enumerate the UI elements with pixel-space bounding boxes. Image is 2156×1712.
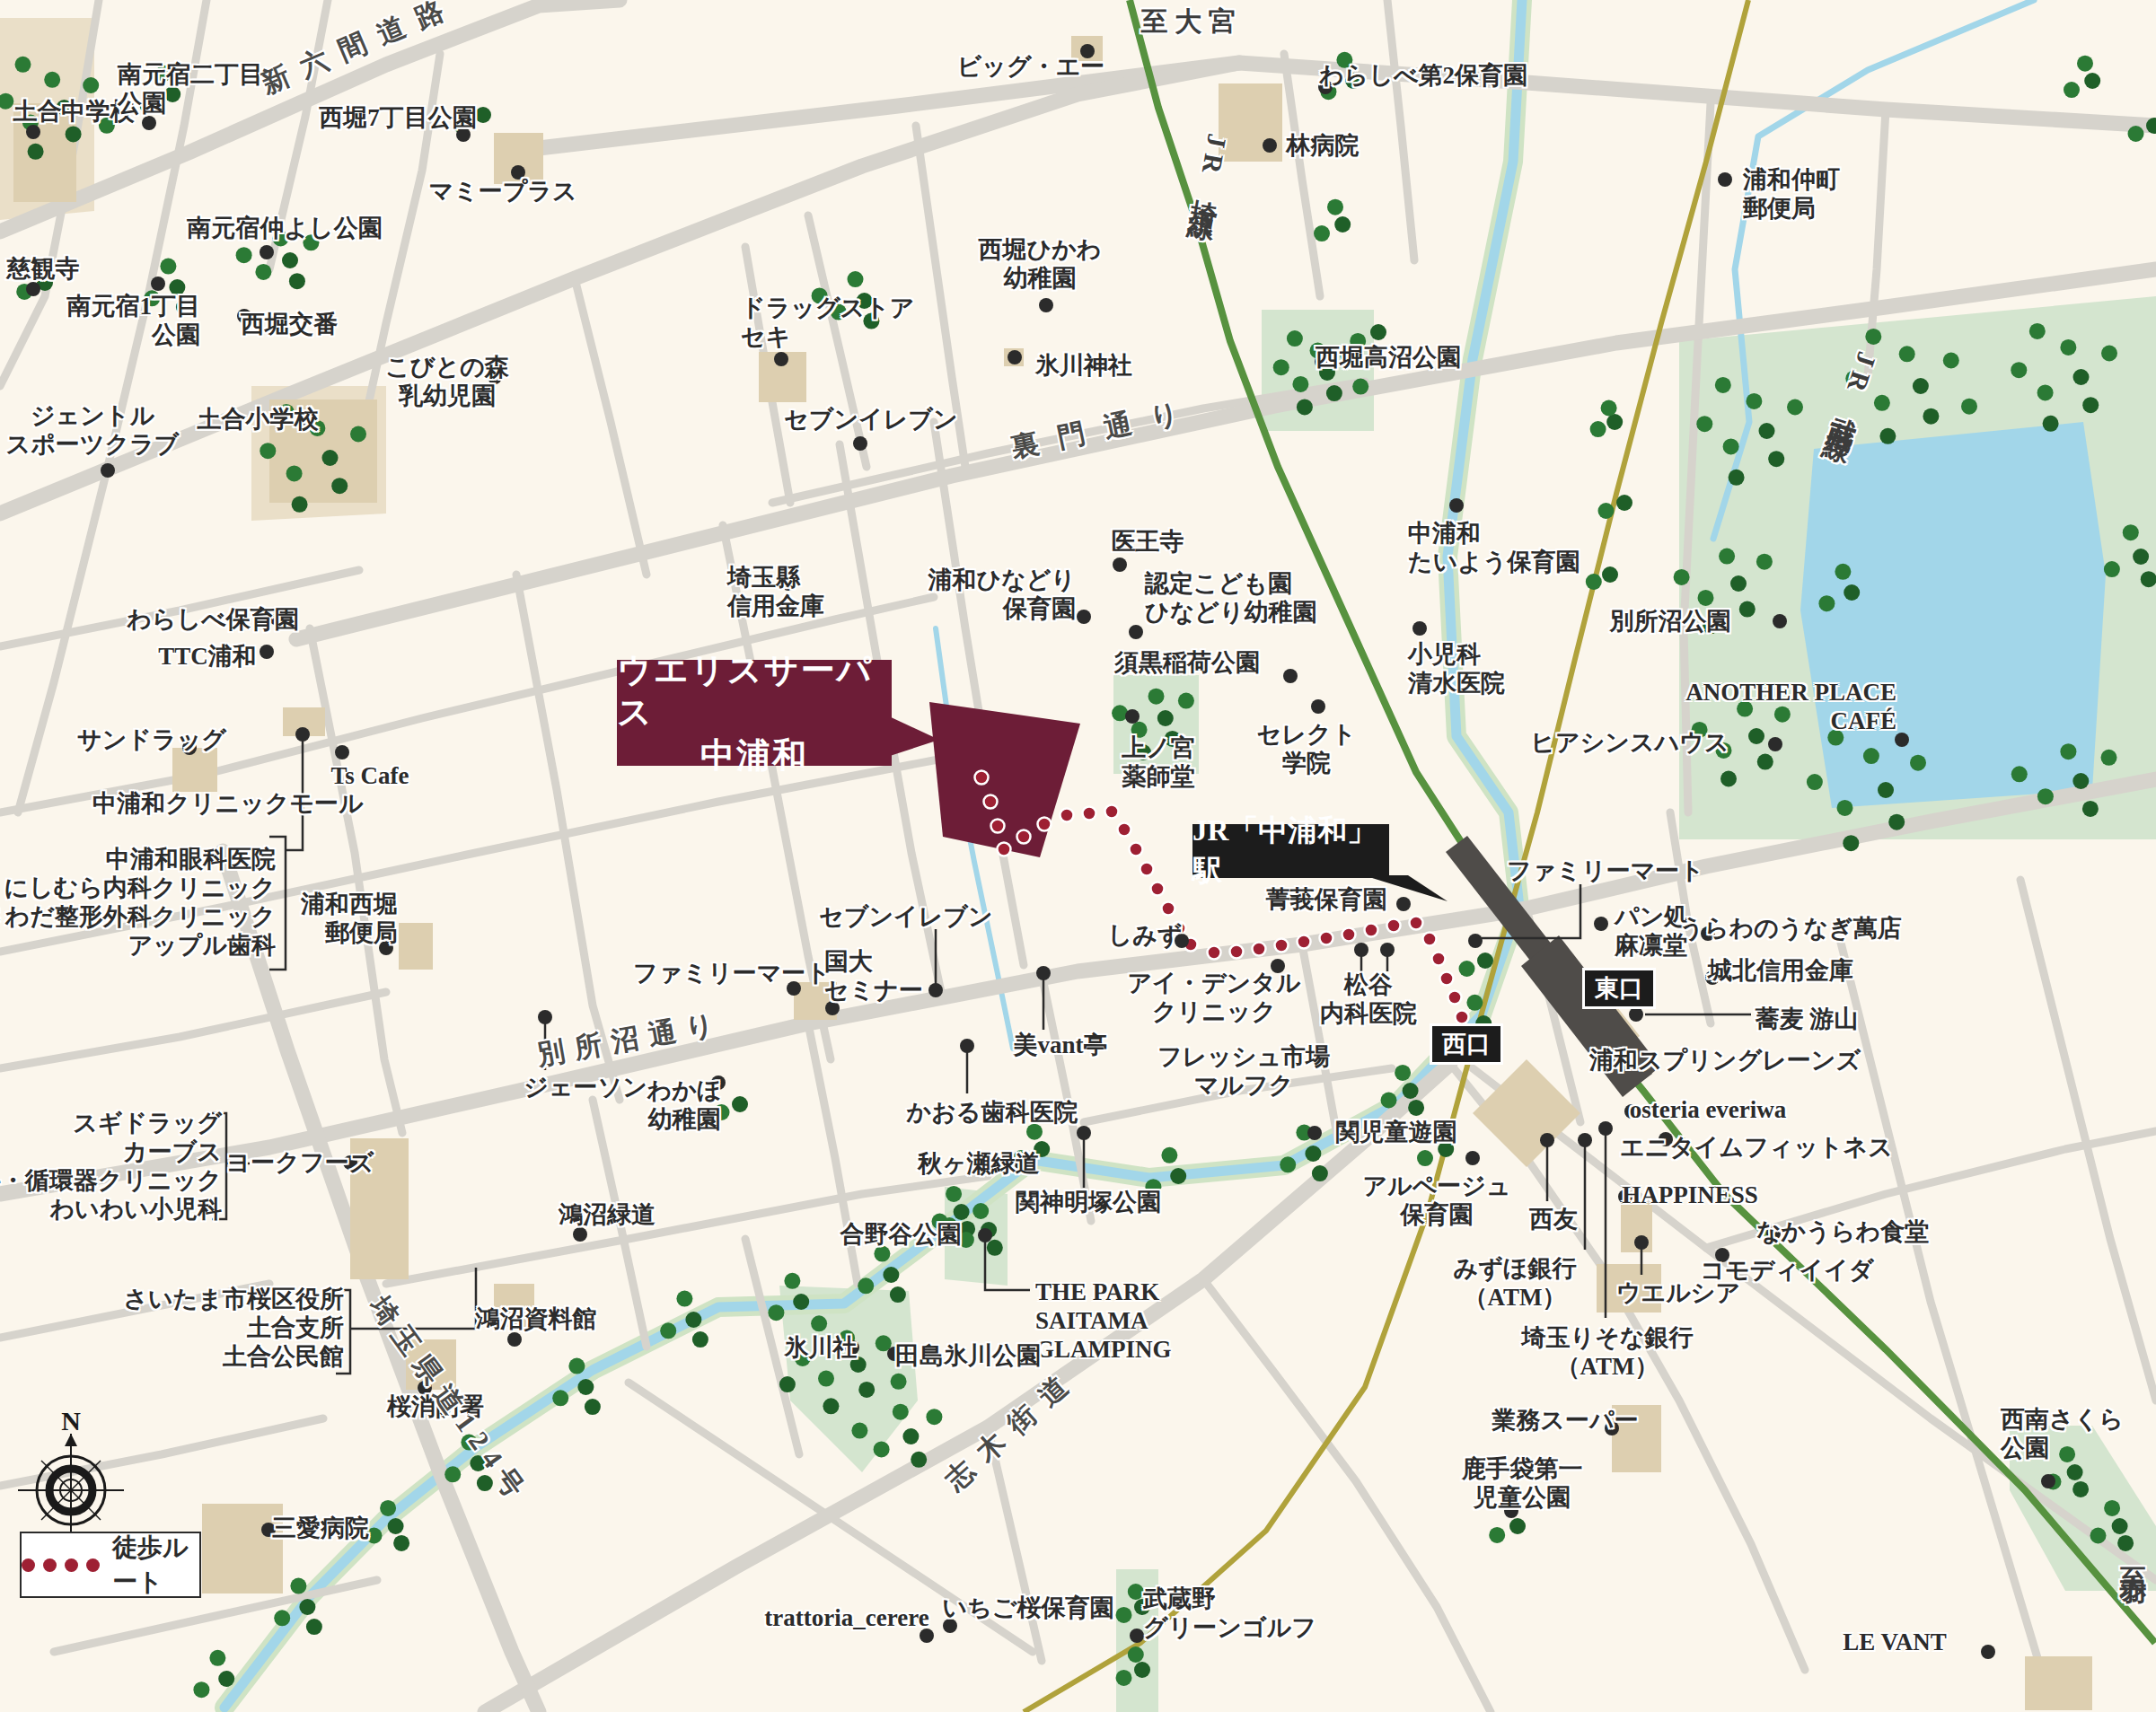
tree-icon: [1720, 771, 1737, 787]
poi-label: 西堀7丁目公園: [319, 104, 477, 133]
poi-label: わらしべ保育園: [127, 606, 299, 635]
poi-label: 浦和スプリングレーンズ: [1589, 1047, 1861, 1075]
poi-label: うらわのうなぎ萬店: [1679, 915, 1901, 944]
poi-dot: [1113, 557, 1127, 572]
poi-label: なかうらわ食堂: [1756, 1218, 1929, 1247]
tree-icon: [292, 496, 308, 513]
station-east-gate-label: 東口: [1582, 968, 1656, 1009]
poi-dot: [853, 436, 867, 451]
tree-icon: [1403, 1083, 1419, 1099]
tree-icon: [2043, 416, 2059, 432]
poi-label: 松谷内科医院: [1320, 971, 1417, 1029]
poi-label: セレクト学院: [1257, 721, 1357, 778]
poi-label: 田島氷川公園: [895, 1342, 1041, 1371]
poi-label: パン処麻凛堂: [1615, 903, 1688, 961]
building: [1473, 1059, 1580, 1167]
tree-icon: [1381, 1093, 1397, 1109]
tree-icon: [926, 1409, 942, 1425]
tree-icon: [1837, 800, 1853, 816]
tree-icon: [286, 465, 303, 481]
walk-route-dot: [1208, 946, 1221, 960]
poi-dot: [928, 983, 943, 997]
tree-icon: [1910, 755, 1926, 771]
tree-icon: [1178, 693, 1194, 709]
poi-label: サンドラッグ: [77, 726, 226, 755]
tree-icon: [1739, 601, 1756, 618]
tree-icon: [811, 1315, 827, 1331]
tree-icon: [1417, 1150, 1433, 1166]
poi-label: 埼玉縣信用金庫: [727, 564, 824, 621]
poi-label: ファミリーマート: [1507, 857, 1704, 886]
poi-label: 南元宿1丁目公園: [67, 293, 201, 350]
poi-dot: [1594, 917, 1608, 931]
tree-icon: [1863, 748, 1879, 764]
tree-icon: [1698, 590, 1714, 606]
walk-route-dots-icon: [22, 1558, 100, 1572]
poi-label: 浦和仲町郵便局: [1743, 166, 1840, 224]
tree-icon: [874, 1441, 890, 1457]
tree-icon: [1843, 835, 1859, 851]
tree-icon: [1674, 569, 1690, 585]
poi-label: 認定こども園ひなどり幼稚園: [1145, 570, 1317, 628]
tree-icon: [1746, 393, 1762, 409]
building: [399, 923, 433, 970]
poi-dot: [1354, 943, 1368, 957]
compass-graphic: [18, 1434, 124, 1547]
walk-route-dot: [1230, 945, 1244, 959]
poi-label: アルページュ保育園: [1362, 1172, 1510, 1230]
compass-north-label: N: [61, 1406, 81, 1435]
tree-icon: [299, 1599, 315, 1615]
poi-dot: [1396, 897, 1411, 911]
street: [1841, 943, 2038, 1661]
tree-icon: [2011, 766, 2028, 782]
tree-icon: [1352, 379, 1368, 395]
walk-route-dot: [1253, 943, 1266, 956]
property-name-line1: ウエリスサーパス: [617, 649, 892, 734]
poi-dot: [1125, 709, 1140, 724]
tree-icon: [848, 271, 864, 287]
poi-label: 医王寺: [1112, 528, 1184, 557]
tree-icon: [911, 1452, 927, 1468]
pond: [1800, 422, 2106, 808]
poi-dot: [1311, 699, 1325, 714]
tree-icon: [350, 426, 366, 443]
poi-label: 氷川社: [785, 1334, 858, 1363]
walk-route-dot: [1060, 809, 1074, 822]
tree-icon: [1370, 324, 1386, 340]
poi-dot: [1449, 498, 1464, 513]
poi-dot: [538, 1010, 552, 1024]
tree-icon: [1729, 470, 1745, 486]
street: [2020, 880, 2156, 1400]
tree-icon: [568, 1358, 585, 1374]
tree-icon: [2112, 1518, 2128, 1534]
poi-label: かおる歯科医院: [907, 1099, 1078, 1128]
tree-icon: [44, 72, 60, 88]
tree-icon: [1489, 1527, 1505, 1543]
tree-icon: [1314, 225, 1330, 241]
walk-route-dot: [1162, 902, 1175, 916]
poi-label: 国大セミナー: [824, 948, 923, 1005]
poi-label: 林病院: [1287, 132, 1360, 161]
tree-icon: [1459, 961, 1475, 977]
poi-dot: [1465, 1151, 1480, 1165]
poi-dot: [1263, 138, 1277, 153]
tree-icon: [2104, 1500, 2120, 1516]
poi-label: 合野谷公園: [840, 1221, 962, 1250]
poi-dot: [2041, 1474, 2055, 1488]
tree-icon: [676, 1291, 692, 1307]
poi-label: 鹿手袋第一児童公園: [1462, 1455, 1583, 1513]
tree-icon: [1835, 564, 1851, 580]
poi-label: 須黒稲荷公園: [1114, 649, 1260, 678]
walk-route-dot: [1440, 972, 1454, 986]
poi-label: ファミリーマート: [633, 960, 831, 988]
tree-icon: [883, 1267, 899, 1283]
tree-icon: [306, 1619, 322, 1635]
tree-icon: [1334, 216, 1351, 233]
tree-icon: [1844, 584, 1860, 601]
tree-icon: [1170, 1168, 1186, 1184]
poi-label: ANOTHER PLACECAFÉ: [1685, 679, 1896, 736]
poi-label: ビッグ・エー: [957, 53, 1105, 82]
tree-icon: [1757, 754, 1773, 770]
walk-route-dot: [984, 795, 998, 809]
tree-icon: [1128, 1584, 1144, 1600]
station-west-gate-label: 西口: [1430, 1023, 1503, 1065]
tree-icon: [66, 126, 82, 142]
street: [1203, 1279, 1491, 1712]
tree-icon: [552, 1390, 568, 1406]
tree-icon: [1759, 423, 1775, 439]
tree-icon: [1327, 199, 1343, 215]
trees-layer: [0, 52, 2156, 1698]
tree-icon: [1768, 451, 1784, 467]
tree-icon: [2123, 524, 2139, 540]
poi-label: osteria everiwa: [1630, 1096, 1787, 1125]
tree-icon: [2101, 750, 2117, 766]
tree-icon: [1879, 428, 1896, 444]
poi-dot: [1008, 350, 1022, 364]
poi-label: TTC浦和: [158, 643, 257, 672]
poi-label: わらしべ第2保育園: [1319, 62, 1527, 91]
poi-dot: [1380, 943, 1395, 957]
tree-icon: [209, 1650, 225, 1666]
tree-icon: [2029, 323, 2046, 339]
poi-label: ドラッグストアセキ: [741, 294, 914, 352]
tree-icon: [784, 1273, 800, 1289]
poi-label: ジェーソン: [524, 1074, 647, 1102]
poi-label: 西友: [1529, 1206, 1578, 1234]
poi-dot: [1629, 1007, 1643, 1022]
tree-icon: [1590, 421, 1606, 437]
walk-route-dot: [1387, 919, 1401, 933]
poi-dot: [1077, 610, 1091, 624]
tree-icon: [972, 1203, 989, 1219]
tree-icon: [732, 1096, 748, 1112]
poi-label: LE VANT: [1843, 1629, 1946, 1657]
walk-route-dot: [1275, 939, 1289, 953]
tree-icon: [818, 1371, 834, 1387]
poi-label: 美vant亭: [1013, 1032, 1107, 1060]
tree-icon: [1287, 330, 1303, 347]
poi-label: 鴻沼緑道: [559, 1201, 656, 1230]
walk-route-dot: [991, 820, 1005, 833]
walk-route-dot: [1456, 1011, 1469, 1024]
tree-icon: [193, 1681, 209, 1698]
tree-icon: [1395, 1065, 1411, 1081]
street: [575, 278, 647, 575]
tree-icon: [2037, 788, 2054, 804]
tree-icon: [1466, 995, 1483, 1011]
tree-icon: [255, 264, 271, 280]
tree-icon: [2084, 73, 2100, 89]
poi-label: 氷川神社: [1035, 352, 1132, 381]
tree-icon: [2082, 801, 2099, 817]
tree-icon: [380, 1500, 396, 1516]
poi-dot: [1283, 669, 1298, 683]
poi-dot: [335, 745, 349, 759]
poi-label: 南元宿二丁目公園: [118, 61, 263, 119]
walk-route-dot: [1151, 882, 1165, 896]
tree-icon: [893, 1404, 909, 1420]
poi-label: 南元宿仲よし公園: [187, 215, 382, 243]
poi-label: マミープラス: [428, 178, 576, 206]
poi-dot: [26, 125, 40, 139]
rail-label: 至赤羽: [2117, 1546, 2149, 1567]
tree-icon: [1602, 566, 1618, 583]
tree-icon: [987, 1240, 1003, 1256]
tree-icon: [2064, 82, 2080, 98]
street: [310, 628, 402, 1133]
poi-dot: [1634, 1235, 1649, 1250]
walk-route-dot: [1140, 863, 1154, 876]
tree-icon: [1943, 353, 1959, 369]
tree-icon: [2128, 126, 2144, 142]
tree-icon: [1756, 554, 1773, 570]
poi-label: 関神明塚公園: [1016, 1189, 1161, 1217]
poi-label: しみず: [1108, 922, 1183, 951]
poi-label: 鴻沼資料館: [476, 1305, 597, 1334]
tree-icon: [1719, 549, 1735, 565]
tree-icon: [1273, 359, 1289, 375]
tree-icon: [858, 1277, 874, 1294]
tree-icon: [1157, 710, 1174, 726]
poi-label: セブンイレブン: [819, 903, 992, 932]
tree-icon: [851, 1423, 867, 1439]
street: [1284, 54, 1320, 296]
tree-icon: [692, 1331, 708, 1348]
tree-icon: [1616, 495, 1632, 511]
tree-icon: [1923, 408, 1939, 425]
tree-icon: [2072, 773, 2089, 789]
tree-icon: [858, 1382, 875, 1398]
poi-dot: [1718, 172, 1732, 187]
poi-label: 三愛病院: [272, 1514, 369, 1543]
tree-icon: [685, 1312, 701, 1328]
poi-dot: [1540, 1133, 1554, 1147]
tree-icon: [1961, 399, 1977, 415]
tree-icon: [1878, 782, 1894, 798]
tree-icon: [444, 1466, 461, 1482]
tree-icon: [2077, 56, 2093, 72]
tree-icon: [2060, 339, 2076, 356]
station-label: JR「中浦和」駅: [1192, 824, 1389, 878]
tree-icon: [1888, 814, 1905, 830]
poi-label: 別所沼公園: [1610, 608, 1731, 637]
tree-icon: [2072, 1481, 2089, 1497]
tree-icon: [660, 1322, 676, 1339]
poi-dot: [1895, 733, 1909, 747]
walk-route-dot: [1130, 843, 1143, 856]
tree-icon: [793, 1294, 809, 1310]
tree-icon: [236, 247, 252, 263]
poi-label: みずほ銀行（ATM）: [1454, 1255, 1577, 1313]
tree-icon: [2141, 571, 2156, 587]
poi-dot: [1768, 737, 1782, 751]
tree-icon: [15, 57, 31, 73]
tree-icon: [83, 77, 99, 93]
tree-icon: [1723, 438, 1739, 454]
tree-icon: [1730, 575, 1747, 592]
tree-icon: [2037, 384, 2054, 400]
poi-label: 西堀交番: [241, 311, 338, 339]
tree-icon: [1326, 385, 1342, 401]
tree-icon: [768, 1304, 784, 1321]
poi-label: 埼玉りそな銀行（ATM）: [1522, 1324, 1694, 1382]
poi-label: 蕎麦 游山: [1756, 1005, 1859, 1034]
building: [202, 1504, 283, 1593]
tree-icon: [1408, 1100, 1424, 1116]
tree-icon: [1586, 574, 1602, 590]
tree-icon: [260, 443, 276, 459]
tree-icon: [475, 107, 491, 123]
poi-dot: [1412, 621, 1427, 636]
walk-route-dot: [975, 771, 989, 785]
poi-dot: [101, 463, 115, 478]
poi-dot: [1773, 614, 1787, 628]
poi-label: ジェントルスポーツクラブ: [6, 402, 180, 460]
poi-label: 土合中学校: [13, 98, 135, 127]
poi-dot: [1129, 625, 1143, 639]
poi-label: 慈観寺: [7, 255, 80, 284]
poi-dot: [26, 282, 40, 296]
poi-dot: [1578, 1133, 1592, 1147]
tree-icon: [1148, 689, 1165, 705]
tree-icon: [1292, 376, 1308, 392]
poi-label: THE PARKSAITAMAGLAMPING: [1035, 1278, 1172, 1365]
tree-icon: [577, 1379, 594, 1395]
tree-icon: [2011, 362, 2027, 378]
tree-icon: [1601, 400, 1617, 417]
poi-label: trattoria_cerere: [764, 1604, 928, 1633]
tree-icon: [1112, 705, 1128, 721]
tree-icon: [2073, 369, 2090, 385]
poi-label: 関児童遊園: [1336, 1119, 1457, 1147]
street: [0, 992, 386, 1068]
walk-route-dot: [1105, 805, 1119, 819]
tree-icon: [1116, 1670, 1132, 1686]
walk-route-label: 徒歩ルート: [112, 1531, 199, 1599]
walk-route-dot: [1432, 953, 1446, 966]
poi-dot: [260, 245, 274, 259]
poi-label: 上ノ宮薬師堂: [1122, 734, 1195, 792]
walk-route-dot: [998, 843, 1011, 856]
tree-icon: [891, 1374, 907, 1390]
poi-dot: [774, 352, 788, 366]
poi-label: 中浦和クリニックモール: [92, 790, 363, 819]
poi-label: エニタイムフィットネス: [1620, 1134, 1893, 1163]
poi-dot: [1039, 298, 1053, 312]
tree-icon: [2067, 1464, 2083, 1480]
poi-label: 浦和ひなどり保育園: [928, 566, 1076, 624]
poi-dot: [1036, 966, 1051, 980]
poi-label: さいたま市桜区役所土合支所土合公民館: [123, 1286, 344, 1372]
poi-dot: [151, 277, 165, 291]
poi-label: 武蔵野グリーンゴルフ: [1143, 1585, 1316, 1643]
walk-route-dot: [1017, 830, 1031, 844]
tree-icon: [1305, 1146, 1321, 1162]
poi-dot: [978, 1228, 992, 1242]
access-map: ウエリスサーパス 中浦和 JR「中浦和」駅 東口 西口 徒歩ルート N 土合中学…: [0, 0, 2156, 1712]
tree-icon: [946, 1186, 962, 1202]
poi-dot: [1981, 1645, 1995, 1659]
poi-label: 中浦和たいよう保育園: [1408, 520, 1580, 577]
tree-icon: [218, 1671, 234, 1687]
walk-route-dot: [1423, 933, 1437, 946]
tree-icon: [1312, 1165, 1328, 1181]
poi-dot: [507, 1332, 522, 1347]
tree-icon: [1715, 377, 1731, 393]
walk-route-dot: [1448, 991, 1462, 1005]
tree-icon: [1787, 399, 1803, 416]
tree-icon: [2082, 397, 2099, 413]
poi-label: 秋ヶ瀬緑道: [918, 1150, 1040, 1179]
tree-icon: [1865, 329, 1881, 345]
building: [2025, 1656, 2092, 1710]
tree-icon: [2104, 561, 2120, 577]
tree-icon: [1818, 595, 1835, 611]
poi-label: わかほ幼稚園: [647, 1077, 722, 1135]
poi-label: セブンイレブン: [784, 406, 957, 435]
poi-dot: [295, 727, 310, 742]
walk-route-dot: [1365, 924, 1378, 937]
walk-route-dot: [1320, 932, 1333, 945]
tree-icon: [890, 1286, 906, 1303]
tree-icon: [322, 450, 339, 466]
tree-icon: [585, 1399, 601, 1415]
poi-label: HAPPINESS: [1622, 1181, 1758, 1210]
tree-icon: [954, 1204, 970, 1220]
tree-icon: [1297, 399, 1313, 415]
poi-dot: [960, 1039, 974, 1053]
poi-label: スギドラッグカーブスしまだ内科・循環器クリニックわいわい小児科: [0, 1110, 222, 1224]
tree-icon: [393, 1535, 409, 1551]
tree-icon: [902, 1428, 919, 1444]
tree-icon: [1899, 346, 1915, 362]
tree-icon: [290, 1578, 306, 1594]
tree-icon: [1161, 1147, 1177, 1163]
poi-label: アイ・デンタルクリニック: [1128, 970, 1301, 1027]
walk-route-dot: [1083, 807, 1096, 821]
poi-dot: [1468, 934, 1483, 948]
tree-icon: [779, 1376, 796, 1392]
tree-icon: [274, 1610, 290, 1626]
property-name-line2: 中浦和: [700, 734, 808, 777]
tree-icon: [1874, 395, 1890, 411]
tree-icon: [1128, 1646, 1144, 1663]
